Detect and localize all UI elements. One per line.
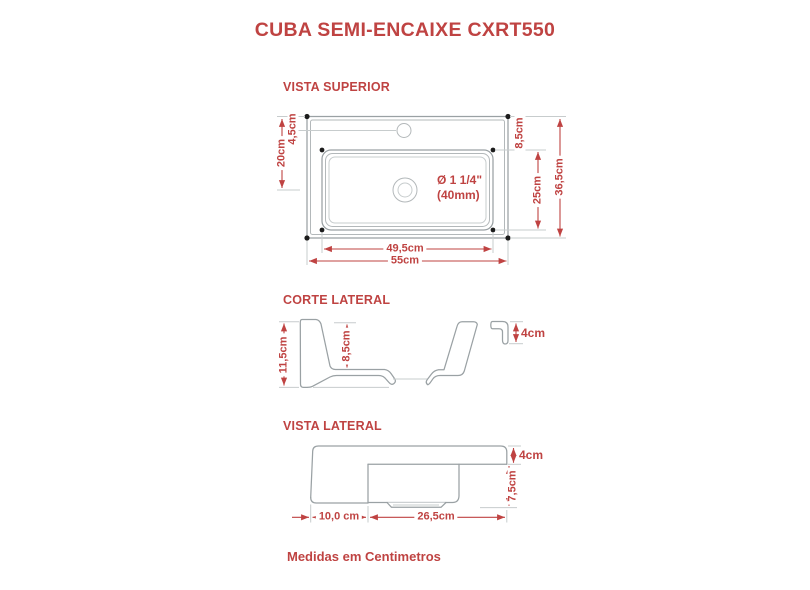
dim-section-total-height-label: 11,5cm [279, 334, 290, 377]
dim-drain-offset-label: 20cm [277, 136, 288, 170]
section-view-title: CORTE LATERAL [283, 294, 390, 307]
side-outline-top [311, 446, 507, 498]
dim-total-depth-label: 36,5cm [555, 155, 566, 198]
side-view-title: VISTA LATERAL [283, 420, 382, 433]
dim-section-basin-depth-label: 8,5cm [342, 327, 353, 364]
dim-side-body-depth-label: 7,5cm [508, 467, 519, 504]
dim-side-front-overhang-label: 10,0 cm [316, 512, 362, 523]
side-basin-outline [368, 464, 459, 502]
top-view-title: VISTA SUPERIOR [283, 81, 390, 94]
page-title: CUBA SEMI-ENCAIXE CXRT550 [0, 21, 810, 41]
dim-basin-depth-label: 25cm [533, 173, 544, 207]
section-view-drawing [279, 320, 523, 388]
side-apron-bottom [311, 498, 368, 504]
dim-basin-top-offset-label: 8,5cm [515, 114, 526, 151]
line-art [0, 0, 810, 590]
technical-drawing-page: CUBA SEMI-ENCAIXE CXRT550 VISTA SUPERIOR… [0, 0, 810, 590]
dim-side-rim-height-label: 4cm [519, 449, 543, 461]
dim-section-rim-height-label: 4cm [521, 327, 545, 339]
dim-total-width-label: 55cm [388, 256, 422, 267]
section-right-wall-profile [426, 322, 477, 385]
dim-side-basin-length-label: 26,5cm [414, 512, 457, 523]
units-note: Medidas em Centimetros [287, 550, 441, 563]
drain-diameter-label-line1: Ø 1 1/4" [437, 174, 482, 186]
dim-basin-width-label: 49,5cm [383, 244, 426, 255]
section-rim-hook-profile [491, 322, 508, 345]
dim-faucet-offset-label: 4,5cm [288, 110, 299, 147]
drain-diameter-label-line2: (40mm) [437, 189, 480, 201]
